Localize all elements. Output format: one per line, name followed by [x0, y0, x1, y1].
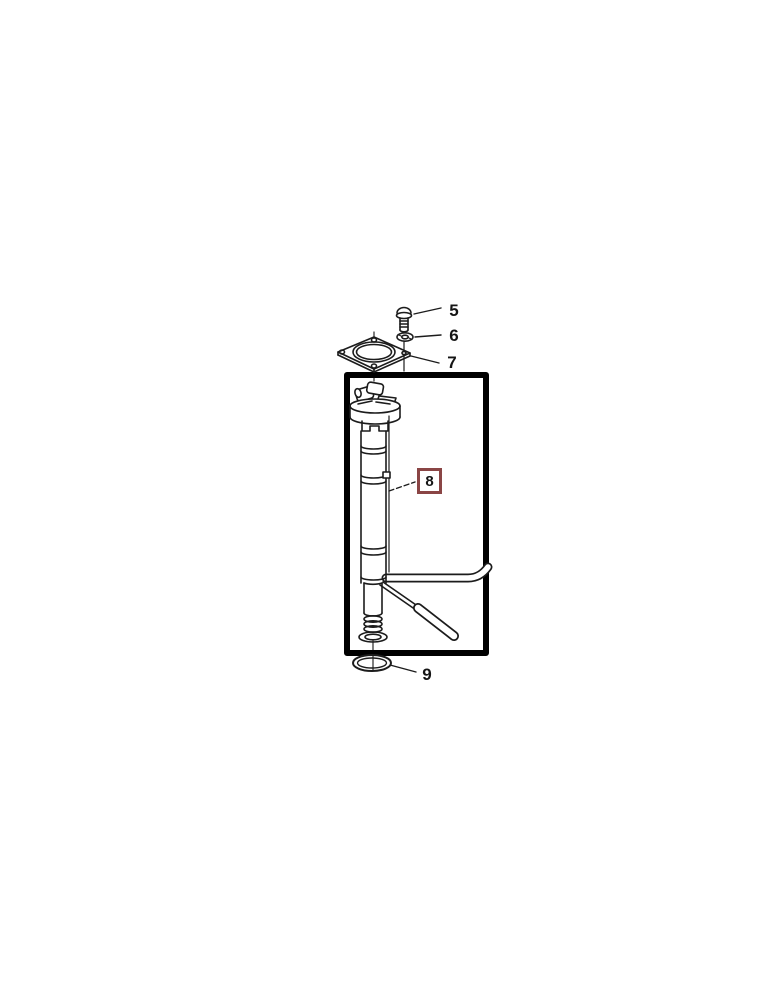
outlet-pipe-drawing [386, 567, 488, 578]
callout-label-6: 6 [443, 327, 465, 344]
gasket-plate-drawing [338, 337, 410, 372]
washer-drawing [397, 333, 413, 341]
parts-diagram-page: 5 6 7 8 9 [0, 0, 771, 1000]
leader-line-9 [390, 665, 416, 672]
callout-label-7: 7 [441, 354, 463, 371]
sender-bottom-drawing [359, 616, 387, 642]
sender-head-drawing [350, 382, 400, 431]
leader-line-5 [414, 308, 441, 314]
leader-line-6 [415, 335, 441, 337]
bolt-drawing [397, 308, 412, 332]
callout-label-5: 5 [443, 302, 465, 319]
leader-line-7 [411, 356, 439, 363]
leader-line-8 [389, 482, 415, 491]
callout-label-8: 8 [425, 473, 433, 490]
sender-tube-drawing [361, 416, 390, 616]
o-ring-drawing [353, 655, 391, 671]
callout-label-9: 9 [416, 666, 438, 683]
callout-highlight-box-8: 8 [417, 468, 442, 494]
parts-diagram-drawing [0, 0, 771, 1000]
float-arm-drawing [380, 582, 454, 636]
